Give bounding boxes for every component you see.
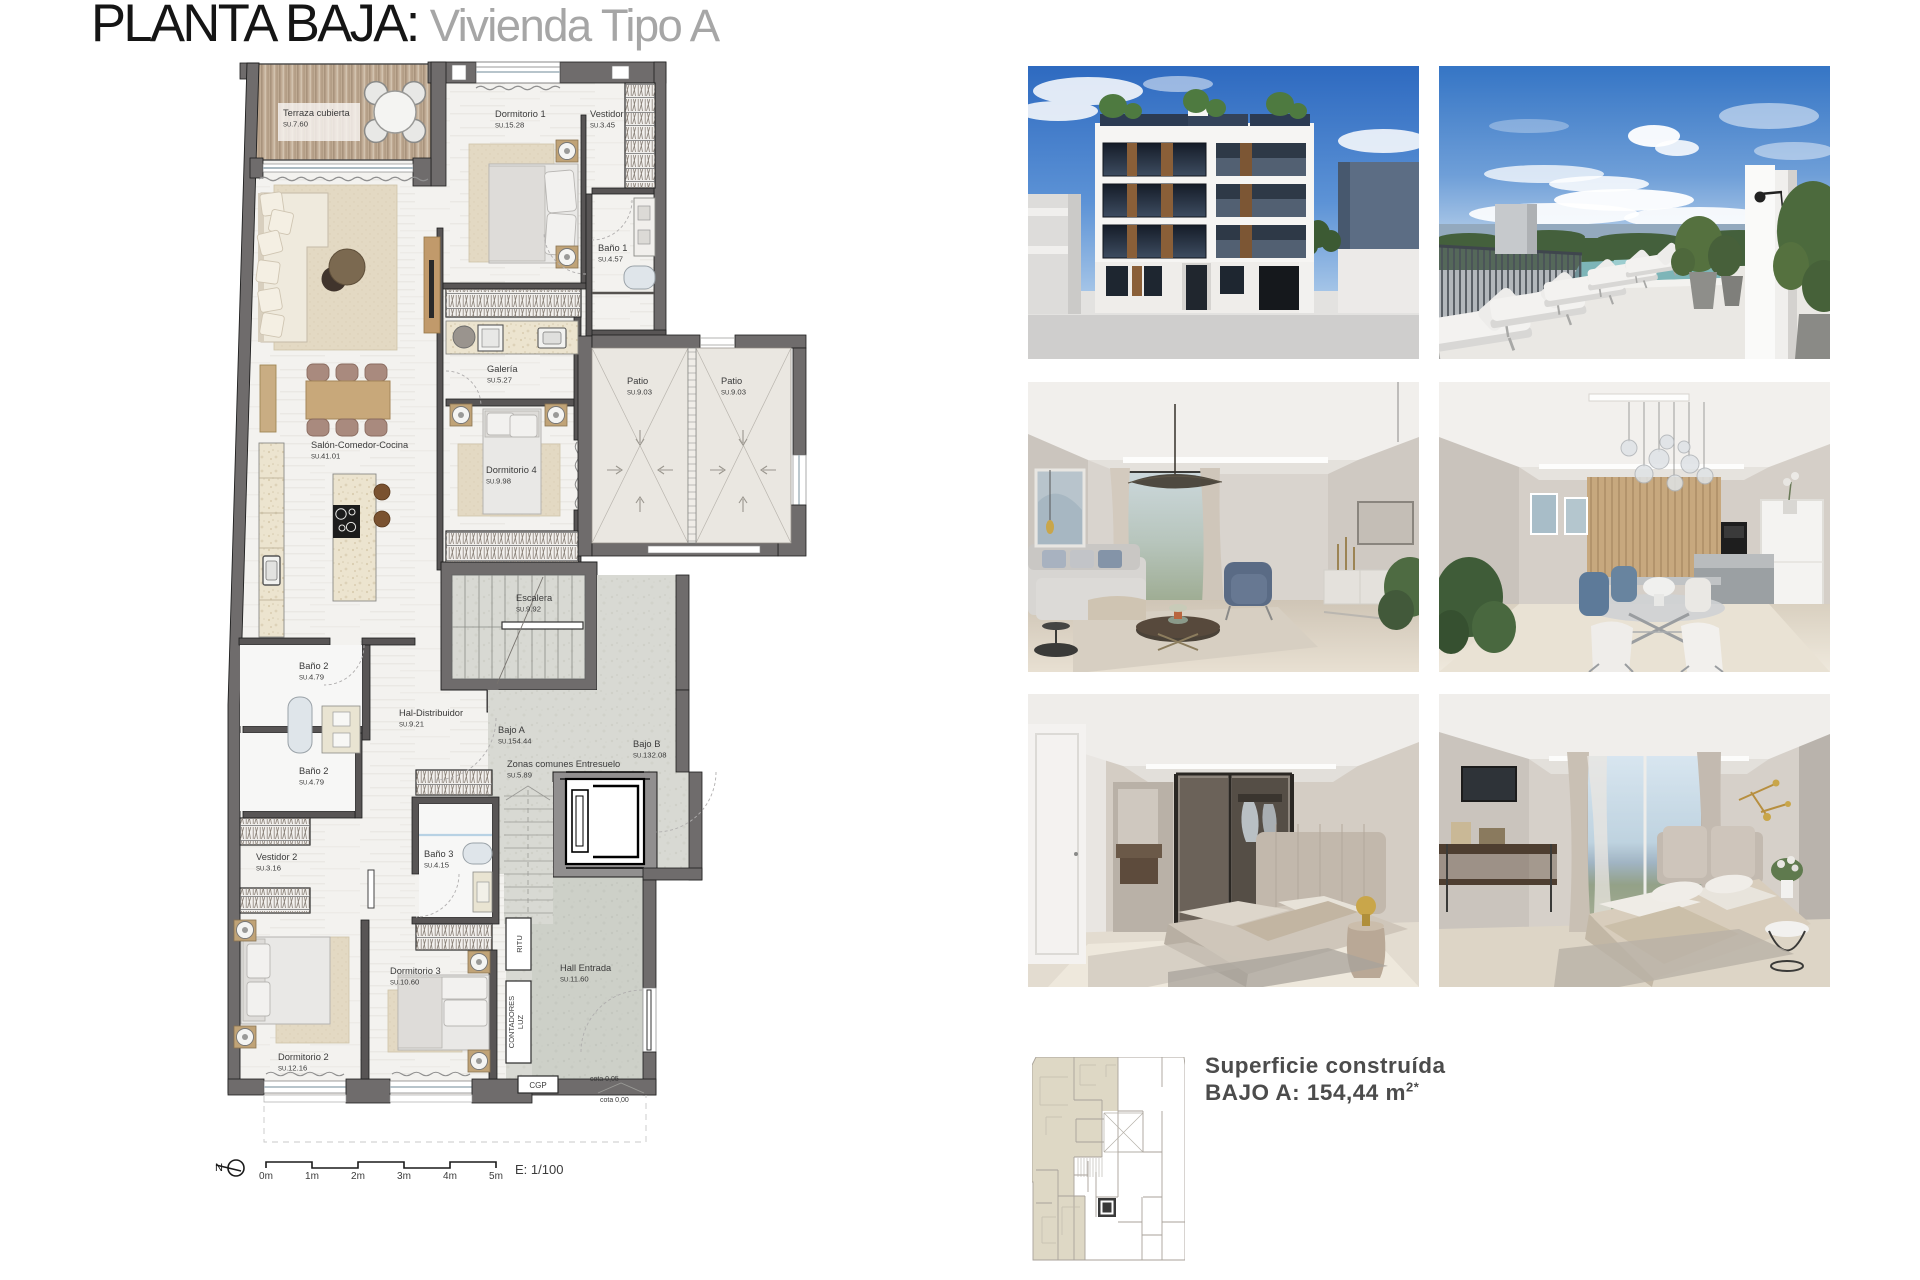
svg-text:CGP: CGP: [529, 1081, 546, 1090]
svg-text:Vestidor: Vestidor: [590, 109, 624, 119]
svg-text:Patio: Patio: [627, 376, 648, 386]
svg-text:Galería: Galería: [487, 364, 518, 374]
svg-text:Bajo A: Bajo A: [498, 725, 526, 735]
svg-text:Dormitorio 4: Dormitorio 4: [486, 465, 537, 475]
svg-text:Dormitorio 3: Dormitorio 3: [390, 966, 441, 976]
svg-text:N: N: [215, 1162, 223, 1174]
svg-text:Dormitorio 2: Dormitorio 2: [278, 1052, 329, 1062]
svg-text:0m: 0m: [259, 1171, 273, 1182]
svg-text:Baño 3: Baño 3: [424, 849, 453, 859]
svg-text:Terraza cubierta: Terraza cubierta: [283, 108, 350, 118]
svg-text:Hall Entrada: Hall Entrada: [560, 963, 612, 973]
svg-text:Dormitorio 1: Dormitorio 1: [495, 109, 546, 119]
svg-text:3m: 3m: [397, 1171, 411, 1182]
svg-text:1m: 1m: [305, 1171, 319, 1182]
svg-text:cota 0,05: cota 0,05: [590, 1076, 619, 1083]
svg-text:Zonas comunes Entresuelo: Zonas comunes Entresuelo: [507, 759, 620, 769]
svg-text:LUZ: LUZ: [516, 1014, 525, 1029]
svg-text:RITU: RITU: [515, 935, 524, 953]
svg-text:Baño 1: Baño 1: [598, 243, 627, 253]
svg-text:CONTADORES: CONTADORES: [507, 996, 516, 1048]
svg-text:Vestidor 2: Vestidor 2: [256, 852, 297, 862]
svg-text:Bajo B: Bajo B: [633, 739, 660, 749]
svg-text:Escalera: Escalera: [516, 593, 553, 603]
svg-text:cota 0,00: cota 0,00: [600, 1097, 629, 1104]
svg-text:Baño 2: Baño 2: [299, 766, 328, 776]
svg-text:4m: 4m: [443, 1171, 457, 1182]
svg-text:2m: 2m: [351, 1171, 365, 1182]
svg-text:Hal-Distribuidor: Hal-Distribuidor: [399, 708, 463, 718]
svg-text:Baño 2: Baño 2: [299, 661, 328, 671]
svg-text:Salón-Comedor-Cocina: Salón-Comedor-Cocina: [311, 440, 409, 450]
svg-text:5m: 5m: [489, 1171, 503, 1182]
svg-text:E: 1/100: E: 1/100: [515, 1162, 563, 1177]
svg-text:Patio: Patio: [721, 376, 742, 386]
